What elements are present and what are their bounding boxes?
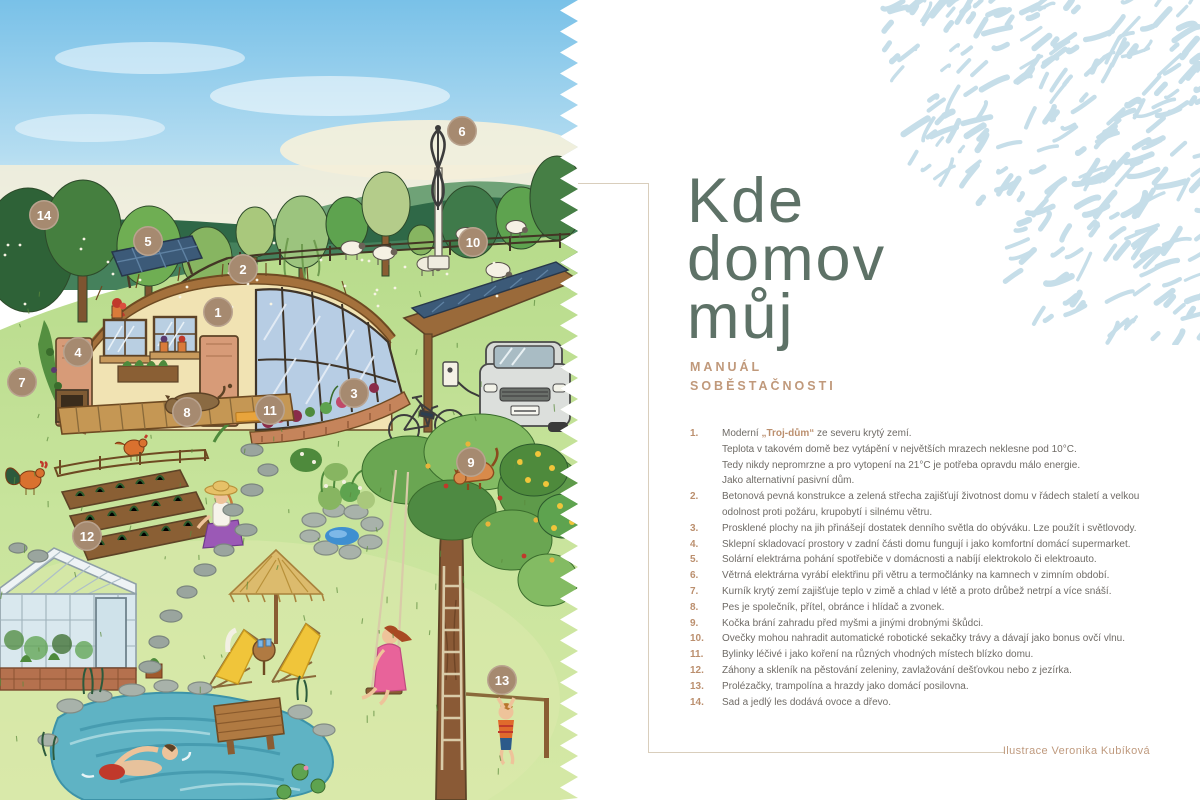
legend-item: 5.Solární elektrárna pohání spotřebiče v… — [690, 552, 1139, 568]
legend-item-text: Kurník krytý zemí zajišťuje teplo v zimě… — [722, 584, 1111, 600]
legend-item: 8.Pes je společník, přítel, obránce i hl… — [690, 600, 1139, 616]
legend-item-number: 4. — [690, 537, 722, 553]
title-line-3: můj — [687, 288, 886, 346]
marker-11: 11 — [255, 395, 285, 425]
marker-4: 4 — [63, 337, 93, 367]
legend-item-text: Prosklené plochy na jih přinášejí dostat… — [722, 521, 1137, 537]
legend-item-number: 1. — [690, 426, 722, 489]
legend-item-text: Bylinky léčivé i jako koření na různých … — [722, 647, 1033, 663]
page: 1234567891011121314 Kde domov můj MANUÁL… — [0, 0, 1200, 800]
legend-item-number: 3. — [690, 521, 722, 537]
marker-6: 6 — [447, 116, 477, 146]
title-line-2: domov — [687, 230, 886, 288]
title-line-1: Kde — [687, 172, 886, 230]
legend-item: 2.Betonová pevná konstrukce a zelená stř… — [690, 489, 1139, 521]
legend-item: 11.Bylinky léčivé i jako koření na různý… — [690, 647, 1139, 663]
marker-9: 9 — [456, 447, 486, 477]
marker-13: 13 — [487, 665, 517, 695]
legend-item: 13.Prolézačky, trampolína a hrazdy jako … — [690, 679, 1139, 695]
legend-item: 7.Kurník krytý zemí zajišťuje teplo v zi… — [690, 584, 1139, 600]
marker-1: 1 — [203, 297, 233, 327]
legend-item-number: 7. — [690, 584, 722, 600]
page-subtitle: MANUÁL SOBĚSTAČNOSTI — [690, 358, 836, 396]
illustrator-credit: Ilustrace Veronika Kubíková — [1003, 745, 1150, 757]
legend-item-text: Sad a jedlý les dodává ovoce a dřevo. — [722, 695, 891, 711]
page-title: Kde domov můj — [687, 172, 886, 346]
subtitle-line-1: MANUÁL — [690, 358, 836, 377]
marker-3: 3 — [339, 378, 369, 408]
legend-item-text: Sklepní skladovací prostory v zadní část… — [722, 537, 1131, 553]
legend-item: 4.Sklepní skladovací prostory v zadní čá… — [690, 537, 1139, 553]
marker-12: 12 — [72, 521, 102, 551]
legend-item: 10.Ovečky mohou nahradit automatické rob… — [690, 631, 1139, 647]
frame-rule-vertical — [648, 183, 649, 753]
corner-doodle — [880, 0, 1200, 345]
legend-item-text: Prolézačky, trampolína a hrazdy jako dom… — [722, 679, 969, 695]
legend-item-number: 6. — [690, 568, 722, 584]
subtitle-line-2: SOBĚSTAČNOSTI — [690, 377, 836, 396]
marker-7: 7 — [7, 367, 37, 397]
legend-item: 3.Prosklené plochy na jih přinášejí dost… — [690, 521, 1139, 537]
marker-10: 10 — [458, 227, 488, 257]
legend-item-text: Solární elektrárna pohání spotřebiče v d… — [722, 552, 1097, 568]
frame-rule-top — [578, 183, 648, 184]
legend-item: 14.Sad a jedlý les dodává ovoce a dřevo. — [690, 695, 1139, 711]
legend-item-text: Kočka brání zahradu před myšmi a jinými … — [722, 616, 983, 632]
illustration-panel: 1234567891011121314 — [0, 0, 578, 800]
marker-2: 2 — [228, 254, 258, 284]
legend-item-text: Záhony a skleník na pěstování zeleniny, … — [722, 663, 1072, 679]
legend-item: 12.Záhony a skleník na pěstování zelenin… — [690, 663, 1139, 679]
legend-item-number: 12. — [690, 663, 722, 679]
marker-5: 5 — [133, 226, 163, 256]
legend-item-number: 13. — [690, 679, 722, 695]
legend-item-number: 9. — [690, 616, 722, 632]
legend-item-text: Ovečky mohou nahradit automatické roboti… — [722, 631, 1125, 647]
legend-item-text: Betonová pevná konstrukce a zelená střec… — [722, 489, 1139, 521]
legend-item: 6.Větrná elektrárna vyrábí elektřinu při… — [690, 568, 1139, 584]
frame-rule-bottom — [648, 752, 1005, 753]
legend-list: 1.Moderní „Troj-dům“ ze severu krytý zem… — [690, 426, 1139, 710]
legend-item: 1.Moderní „Troj-dům“ ze severu krytý zem… — [690, 426, 1139, 489]
legend-item-text: Moderní „Troj-dům“ ze severu krytý zemí.… — [722, 426, 1080, 489]
legend-item-number: 10. — [690, 631, 722, 647]
legend-item-text: Větrná elektrárna vyrábí elektřinu při v… — [722, 568, 1109, 584]
legend-item-number: 5. — [690, 552, 722, 568]
legend-item-number: 8. — [690, 600, 722, 616]
legend-item-number: 11. — [690, 647, 722, 663]
legend-item-number: 14. — [690, 695, 722, 711]
legend-item-number: 2. — [690, 489, 722, 521]
marker-14: 14 — [29, 200, 59, 230]
marker-8: 8 — [172, 397, 202, 427]
legend-item: 9.Kočka brání zahradu před myšmi a jiným… — [690, 616, 1139, 632]
legend-item-text: Pes je společník, přítel, obránce i hlíd… — [722, 600, 944, 616]
